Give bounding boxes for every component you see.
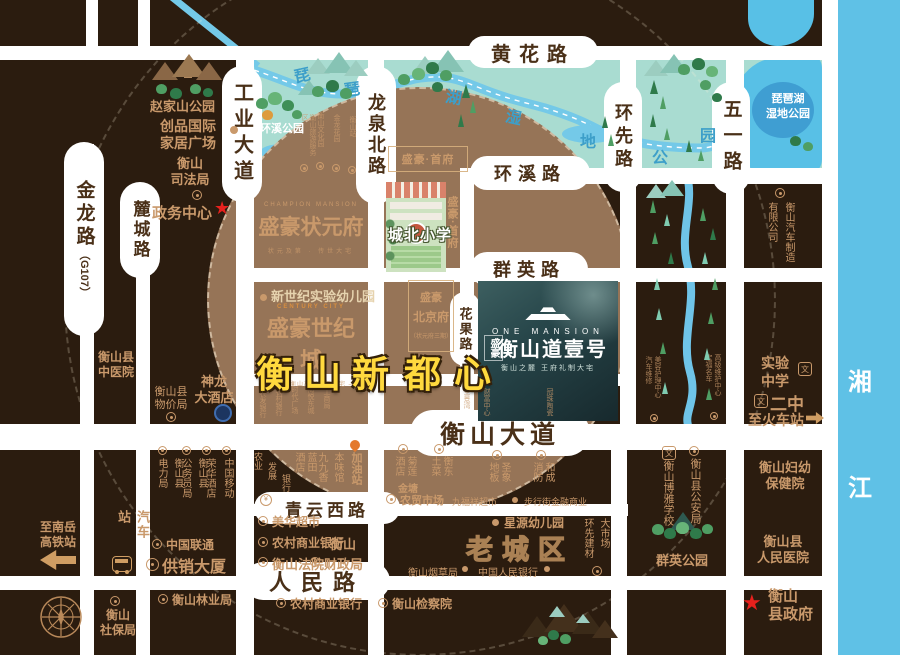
beijingfu-brand: 盛豪 (409, 289, 453, 305)
tree-icon (156, 84, 167, 94)
beijingfu-name: 北京府 (409, 308, 453, 325)
champion-sub: 状元及第 · 传世大宅 (256, 246, 366, 255)
poi-line: 环先建材 (580, 518, 595, 558)
pine-icon (650, 114, 656, 127)
poi-circle-icon (166, 412, 176, 422)
poi-circle-icon (182, 446, 191, 455)
pine-icon (662, 382, 668, 394)
tree-icon (706, 66, 718, 77)
wetland-char: 园 (700, 122, 716, 146)
arrow-left-icon (40, 550, 76, 570)
poi-circle-icon (258, 557, 268, 567)
poi-yidong: 中国移动 (220, 458, 235, 508)
small-poi: 圣象地板 (486, 462, 510, 488)
road-label: 环溪路 (494, 160, 566, 186)
tree-icon (678, 64, 690, 75)
poi-line: 衡山妇幼 (750, 460, 820, 476)
beijingfu-phase: （状元府三期） (409, 331, 453, 340)
poi-meihua: 美华超市 (272, 513, 320, 530)
wen-icon: 文 (798, 362, 812, 376)
small-poi: 冠珠陶瓷 (545, 388, 553, 420)
tree-icon (702, 524, 713, 534)
pine-icon (706, 388, 712, 400)
tree-icon (664, 528, 676, 539)
poi-circle-icon (110, 596, 120, 606)
pill-huanxi: 环溪路 (470, 156, 590, 190)
mountain-icon (549, 606, 565, 617)
one-mansion-name: 衡山道壹号 (498, 333, 616, 362)
small-poi: 发展 (268, 462, 276, 484)
tree-icon (548, 630, 559, 640)
poi-circle-icon (300, 164, 308, 172)
pine-icon (698, 150, 704, 161)
wetland-char: 公 (652, 144, 668, 168)
champion-mansion-logo: CHAMPION MANSION 盛豪状元府 状元及第 · 传世大宅 (256, 202, 366, 255)
small-poi-pair: 本味馆 九九香 (314, 452, 345, 482)
road-label: 龙泉北路 (363, 93, 389, 177)
small-poi: 步行街金融商业 (524, 495, 587, 508)
small-poi: 银行 (282, 474, 290, 496)
poi-dot (230, 126, 238, 134)
poi-qunying-park: 群英公园 (648, 550, 716, 569)
poi-circle-icon (689, 446, 699, 456)
wen-icon: 文 (662, 446, 676, 460)
pine-icon (652, 232, 658, 244)
huanxi-park-label: 环溪公园 (260, 120, 304, 136)
poi-line: 新世纪实验幼儿园 (271, 289, 375, 304)
poi-line: 创品国际 (152, 118, 224, 135)
small-poi: 和成消防 (530, 462, 554, 488)
pine-icon (654, 278, 660, 290)
roof-icon (518, 303, 578, 325)
tree-icon (560, 634, 571, 644)
shoufu-box: 盛豪·首府 (388, 146, 468, 172)
poi-dot (492, 519, 499, 526)
poi-circle-icon (386, 494, 396, 504)
poi-circle-icon (348, 166, 356, 174)
hotel-logo-icon (214, 404, 232, 422)
poi-fuyou: 衡山妇幼保健院 (750, 460, 820, 492)
poi-circle-icon (152, 539, 162, 549)
bus-icon (112, 556, 132, 572)
poi-line: 保健院 (750, 476, 820, 492)
xiang-char: 湘 (848, 362, 872, 397)
poi-shiyan: 实验中学 (758, 354, 792, 390)
pine-icon (710, 228, 716, 240)
champion-name: 盛豪状元府 (256, 211, 366, 241)
poi-ronghua: 荣华酒店 (202, 458, 217, 508)
poi-line: 九九香 (314, 452, 329, 482)
tree-icon (700, 80, 711, 90)
poi-line: 至南岳 (36, 520, 80, 535)
tree-icon (790, 136, 801, 146)
road-riverside (822, 0, 838, 655)
pine-icon (702, 252, 708, 264)
poi-dot (260, 294, 267, 301)
poi-circle-icon (258, 516, 268, 526)
school-building-row (390, 202, 442, 209)
tree-icon (803, 142, 813, 151)
pine-icon (458, 114, 464, 127)
poi-circle-icon (192, 190, 202, 200)
one-mansion-sub: 衡山之麓 王府礼制大宅 (492, 363, 604, 373)
poi-line: 衡山县 (96, 350, 136, 365)
poi-caizheng-2: 财政局 (324, 554, 363, 573)
poi-caizheng-1: 衡山 (330, 534, 356, 553)
tree-icon (690, 528, 702, 539)
tree-icon (676, 522, 689, 534)
small-poi: 金龙花园 (332, 114, 340, 162)
pine-icon (656, 308, 662, 320)
mountain-icon (196, 62, 222, 80)
pine-icon (462, 84, 470, 98)
tree-icon (268, 92, 282, 105)
tree-icon (398, 74, 410, 85)
mountain-icon (344, 60, 368, 76)
small-poi-pair: 美容护理中心 汽车维修 (644, 356, 661, 398)
pine-icon (602, 116, 608, 128)
poi-jianchayuan: 衡山检察院 (392, 595, 452, 612)
pine-icon (708, 312, 714, 324)
small-poi: 农业 (254, 452, 262, 474)
poi-sifaju: 衡山司法局 (164, 156, 216, 188)
poi-circle-icon (158, 446, 167, 455)
poi-circle-icon (775, 188, 785, 198)
poi-zhaojiashan-park: 赵家山公园 (150, 96, 215, 115)
poi-huochezhan: 至火车站 (748, 410, 804, 430)
poi-line: 实验 (758, 354, 792, 372)
road-lucheng (136, 268, 150, 655)
pine-icon (668, 252, 674, 264)
poi-circle-icon (492, 450, 502, 460)
headline-right: 都心 (404, 344, 504, 398)
poi-circle-icon (332, 164, 340, 172)
tree-icon (190, 84, 201, 94)
poi-circle-icon (222, 446, 231, 455)
poi-nongshang2: 农村商业银行 (290, 595, 362, 612)
tree-icon (340, 88, 352, 99)
small-poi: 衡东土菜 (428, 456, 452, 482)
pine-icon (664, 128, 670, 140)
wetland-char: 地 (580, 128, 596, 152)
pine-icon (700, 208, 706, 221)
poi-line: 大市场 (596, 518, 611, 558)
poi-line: 高铁站 (36, 535, 80, 550)
poi-line: 神龙 (190, 374, 238, 390)
poi-circle-icon (258, 537, 268, 547)
tree-icon (692, 58, 705, 70)
poi-liantong: 中国联通 (166, 536, 214, 553)
property-shoufu: 盛豪·首府 (402, 151, 455, 167)
poi-line: 社保局 (96, 623, 140, 638)
poi-wujiaju: 衡山县物价局 (152, 386, 190, 412)
poi-line: 衡山 (164, 156, 216, 172)
star-icon: ★ (214, 198, 230, 219)
road-lucheng-stub (138, 0, 150, 46)
pill-huanghua: 黄花路 (468, 36, 598, 68)
poi-circle-icon (592, 566, 602, 576)
mountain-icon (576, 614, 590, 623)
pill-gongye: 工业大道 (222, 66, 262, 202)
small-poi: 农贸市场 (400, 492, 444, 508)
poi-line: 美容护理中心 (653, 356, 661, 398)
poi-shebaoju: 衡山社保局 (96, 608, 140, 638)
small-poi: 菊莲酒店 (392, 456, 416, 482)
headline-left: 衡山新 (256, 344, 400, 398)
pine-icon (712, 278, 718, 290)
pine-icon (650, 80, 658, 94)
poi-circle-icon (536, 450, 546, 460)
poi-line: 电力局 (154, 458, 169, 488)
poi-yancaoju: 衡山烟草局 (408, 564, 458, 579)
poi-zhengwu-center: 政务中心 (152, 202, 212, 223)
hengshan-location-map: 黄花路 环溪路 群英路 衡山大道 青云西路 人民路 工业大道 龙泉北路 环先路 … (0, 0, 900, 655)
tree-icon (712, 93, 722, 102)
poi-bus-station: 汽车站 (114, 510, 152, 554)
poi-xianzhengfu: 衡山县政府 (768, 588, 822, 624)
poi-circle-icon (398, 444, 408, 454)
pill-jinlong: 金龙路 （G107） (64, 142, 104, 336)
poi-circle-icon (378, 598, 388, 608)
poi-circle-icon (316, 162, 324, 170)
tree-icon (203, 88, 213, 97)
poi-line: 公务员局 (178, 458, 193, 498)
bus-wheel (115, 570, 119, 574)
poi-qiche-zhizao: 衡山汽车制造 有限公司 (764, 202, 796, 262)
school-field (391, 246, 441, 268)
poi-line: 中学 (758, 372, 792, 390)
lake-label-line1: 琵琶湖 (756, 92, 820, 107)
compass-icon (38, 594, 84, 640)
pine-icon (650, 200, 656, 213)
pine-icon (660, 342, 666, 354)
pine-icon (664, 214, 670, 226)
century-en: CENTURY CITY (258, 304, 364, 310)
tree-icon (256, 98, 268, 109)
pine-icon (470, 100, 476, 113)
poi-circle-icon (158, 594, 168, 604)
school-label: 城北小学 (388, 224, 452, 245)
tree-icon (426, 62, 439, 74)
wen-icon: 文 (754, 394, 768, 408)
yuan-icon: ¥ (260, 494, 272, 506)
kindergarten-label: 新世纪实验幼儿园 (260, 286, 375, 305)
pill-lucheng: 麓城路 (120, 182, 160, 278)
poi-gongxiao: 供销大厦 (162, 553, 226, 577)
poi-line: 大酒店 (190, 390, 238, 406)
tree-icon (440, 70, 452, 81)
poi-line: 中医院 (96, 365, 136, 380)
poi-line: 县政府 (768, 606, 822, 624)
school-buildings (386, 182, 446, 198)
bus-window (115, 559, 128, 563)
small-poi: 蓝田酒店 (292, 452, 316, 478)
tree-icon (170, 88, 182, 99)
poi-chuangpin: 创品国际家居广场 (152, 118, 224, 152)
poi-line: 物价局 (152, 399, 190, 412)
mountain-icon (592, 620, 618, 638)
poi-line: 高级维护中心 (713, 354, 721, 396)
beijingfu-box: 盛豪 北京府 （状元府三期） (408, 280, 454, 352)
poi-line: 司法局 (164, 172, 216, 188)
poi-line: 衡山县 (748, 534, 818, 550)
road-label: 群英路 (493, 256, 565, 282)
poi-line: 衡山县 (152, 386, 190, 399)
tree-icon (292, 110, 302, 119)
lake-north-blob (748, 0, 814, 46)
tree-icon (412, 68, 425, 80)
poi-zhongyiyuan: 衡山县中医院 (96, 350, 136, 380)
poi-line: 衡山汽车制造 (781, 202, 796, 262)
pine-icon (660, 96, 666, 109)
poi-renmin-hospital: 衡山县人民医院 (748, 534, 818, 566)
tree-icon (326, 80, 339, 92)
poi-dot (462, 566, 468, 572)
pine-icon (686, 140, 692, 152)
poi-circle-icon (146, 558, 159, 571)
xiangjiang-river (838, 0, 900, 655)
poi-circle-icon (276, 598, 286, 608)
small-poi: 衡山文化园 (316, 112, 324, 160)
poi-gaotie: 至南岳高铁站 (36, 520, 80, 550)
poi-line: 有限公司 (764, 202, 779, 262)
star-icon: ★ (742, 590, 762, 616)
road-label: 麓城路 (128, 200, 153, 260)
bus-wheel (125, 570, 129, 574)
tree-icon (262, 110, 273, 120)
poi-dot (512, 497, 518, 503)
road-label: 五一路 (718, 99, 745, 177)
poi-line: 本味馆 (330, 452, 345, 482)
poi-circle-icon (710, 412, 718, 420)
poi-shenlong-hotel: 神龙大酒店 (190, 374, 238, 406)
pine-icon (704, 348, 710, 360)
tree-icon (282, 100, 294, 111)
poi-line: 家居广场 (152, 135, 224, 152)
tree-icon (432, 82, 443, 92)
road-jinlong-stub (86, 0, 98, 46)
poi-line: 衡山 (768, 588, 822, 606)
poi-dot (544, 566, 550, 572)
tree-icon (312, 86, 324, 97)
poi-linyeju: 衡山林业局 (172, 591, 232, 608)
jiang-char: 江 (848, 468, 872, 503)
tree-icon (652, 524, 664, 535)
poi-line: 人民医院 (748, 550, 818, 566)
poi-circle-icon (310, 557, 320, 567)
champion-en: CHAMPION MANSION (256, 202, 366, 208)
poi-gas-station: 加油站 (348, 452, 364, 492)
poi-line: 汽车维修 (644, 356, 652, 398)
poi-circle-icon (650, 414, 658, 422)
pine-icon (608, 134, 614, 146)
poi-circle-icon (434, 444, 444, 454)
poi-jiancai-market: 大市场 环先建材 (580, 518, 611, 558)
lake-label-line2: 湿地公园 (756, 107, 820, 122)
pipa-lake-label: 琵琶湖 湿地公园 (756, 92, 820, 122)
tree-icon (538, 636, 548, 645)
road-label: 工业大道 (228, 82, 257, 186)
small-poi: 衡山站 (348, 116, 356, 164)
small-poi: 衡山旅游服务区 (300, 114, 316, 162)
road-label-sub: （G107） (76, 249, 92, 298)
poi-circle-icon (202, 446, 211, 455)
mountain-icon (660, 180, 684, 196)
old-town-label: 老城区 (466, 528, 574, 567)
poi-line: 衡山 (96, 608, 140, 623)
poi-renminyinhang: 中国人民银行 (478, 564, 538, 579)
road-label: 金龙路 (71, 180, 98, 249)
road-label: 黄花路 (491, 38, 575, 67)
small-poi: 九福祥超市 (452, 495, 497, 508)
